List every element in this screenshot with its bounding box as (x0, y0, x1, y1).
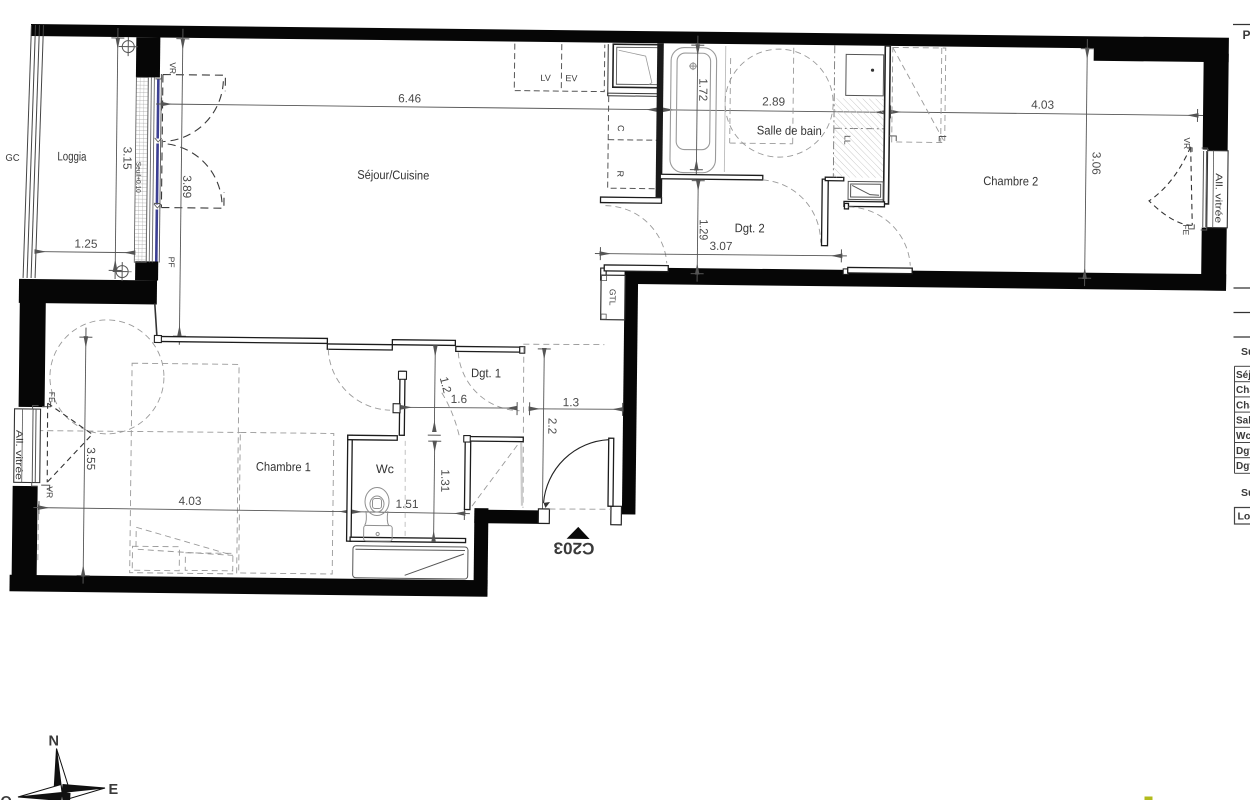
svg-text:Surf: Surf (1241, 487, 1250, 499)
svg-text:R: R (615, 170, 625, 177)
svg-text:1.31: 1.31 (438, 469, 452, 492)
svg-text:VR: VR (45, 486, 55, 498)
svg-text:3.55: 3.55 (84, 447, 98, 471)
svg-text:Dgt. 2: Dgt. 2 (735, 221, 765, 235)
svg-text:1.29: 1.29 (697, 219, 711, 240)
svg-text:N: N (49, 734, 59, 750)
svg-text:E: E (109, 782, 119, 798)
svg-text:GTL: GTL (608, 289, 618, 306)
svg-text:3.89: 3.89 (180, 175, 194, 198)
svg-text:VR: VR (168, 62, 178, 74)
svg-text:Chambre: Chambre (1236, 400, 1250, 411)
svg-text:4.03: 4.03 (1031, 98, 1055, 112)
svg-text:C203: C203 (553, 539, 594, 557)
svg-text:1.6: 1.6 (451, 392, 468, 406)
svg-text:3.06: 3.06 (1089, 152, 1103, 176)
svg-text:PF: PF (167, 257, 177, 268)
svg-text:2.89: 2.89 (762, 94, 785, 108)
svg-text:4.03: 4.03 (178, 494, 202, 508)
svg-text:Séjour: Séjour (1236, 370, 1250, 381)
svg-text:1.3: 1.3 (563, 395, 580, 409)
svg-text:3.15: 3.15 (120, 147, 134, 171)
svg-text:Surf: Surf (1241, 346, 1250, 358)
svg-text:FE: FE (1181, 224, 1191, 235)
svg-text:Chambre: Chambre (1236, 385, 1250, 396)
svg-text:Chambre 2: Chambre 2 (983, 174, 1038, 189)
svg-text:2.2: 2.2 (545, 418, 559, 435)
svg-text:Dgt 1: Dgt 1 (1236, 446, 1250, 457)
svg-text:Loggia: Loggia (1238, 511, 1250, 523)
svg-text:Salle de: Salle de (1236, 416, 1250, 427)
svg-text:GC: GC (5, 153, 20, 164)
svg-text:Dgt. 1: Dgt. 1 (471, 366, 501, 380)
svg-text:EV: EV (565, 73, 577, 83)
svg-text:O: O (1, 794, 12, 800)
svg-text:1.25: 1.25 (74, 237, 98, 251)
svg-text:All. vitrée: All. vitrée (1212, 173, 1224, 223)
svg-text:Chambre 1: Chambre 1 (256, 460, 311, 475)
svg-text:Wc: Wc (1236, 431, 1250, 442)
svg-text:1.51: 1.51 (395, 497, 418, 511)
svg-text:FE: FE (47, 392, 57, 403)
svg-text:3.07: 3.07 (709, 239, 732, 253)
svg-text:Dgt 2: Dgt 2 (1236, 461, 1250, 472)
svg-text:Loggia: Loggia (57, 149, 86, 163)
svg-text:1.72: 1.72 (696, 78, 710, 101)
svg-text:Salle de bain: Salle de bain (757, 123, 822, 138)
svg-text:Wc: Wc (376, 462, 394, 476)
svg-text:LL: LL (842, 135, 852, 145)
svg-text:LV: LV (540, 73, 550, 83)
svg-text:6.46: 6.46 (398, 91, 422, 105)
svg-text:P: P (1243, 28, 1250, 42)
svg-text:C: C (616, 125, 626, 132)
svg-text:All. vitrée: All. vitrée (13, 430, 25, 480)
svg-text:Séjour/Cuisine: Séjour/Cuisine (357, 168, 429, 183)
